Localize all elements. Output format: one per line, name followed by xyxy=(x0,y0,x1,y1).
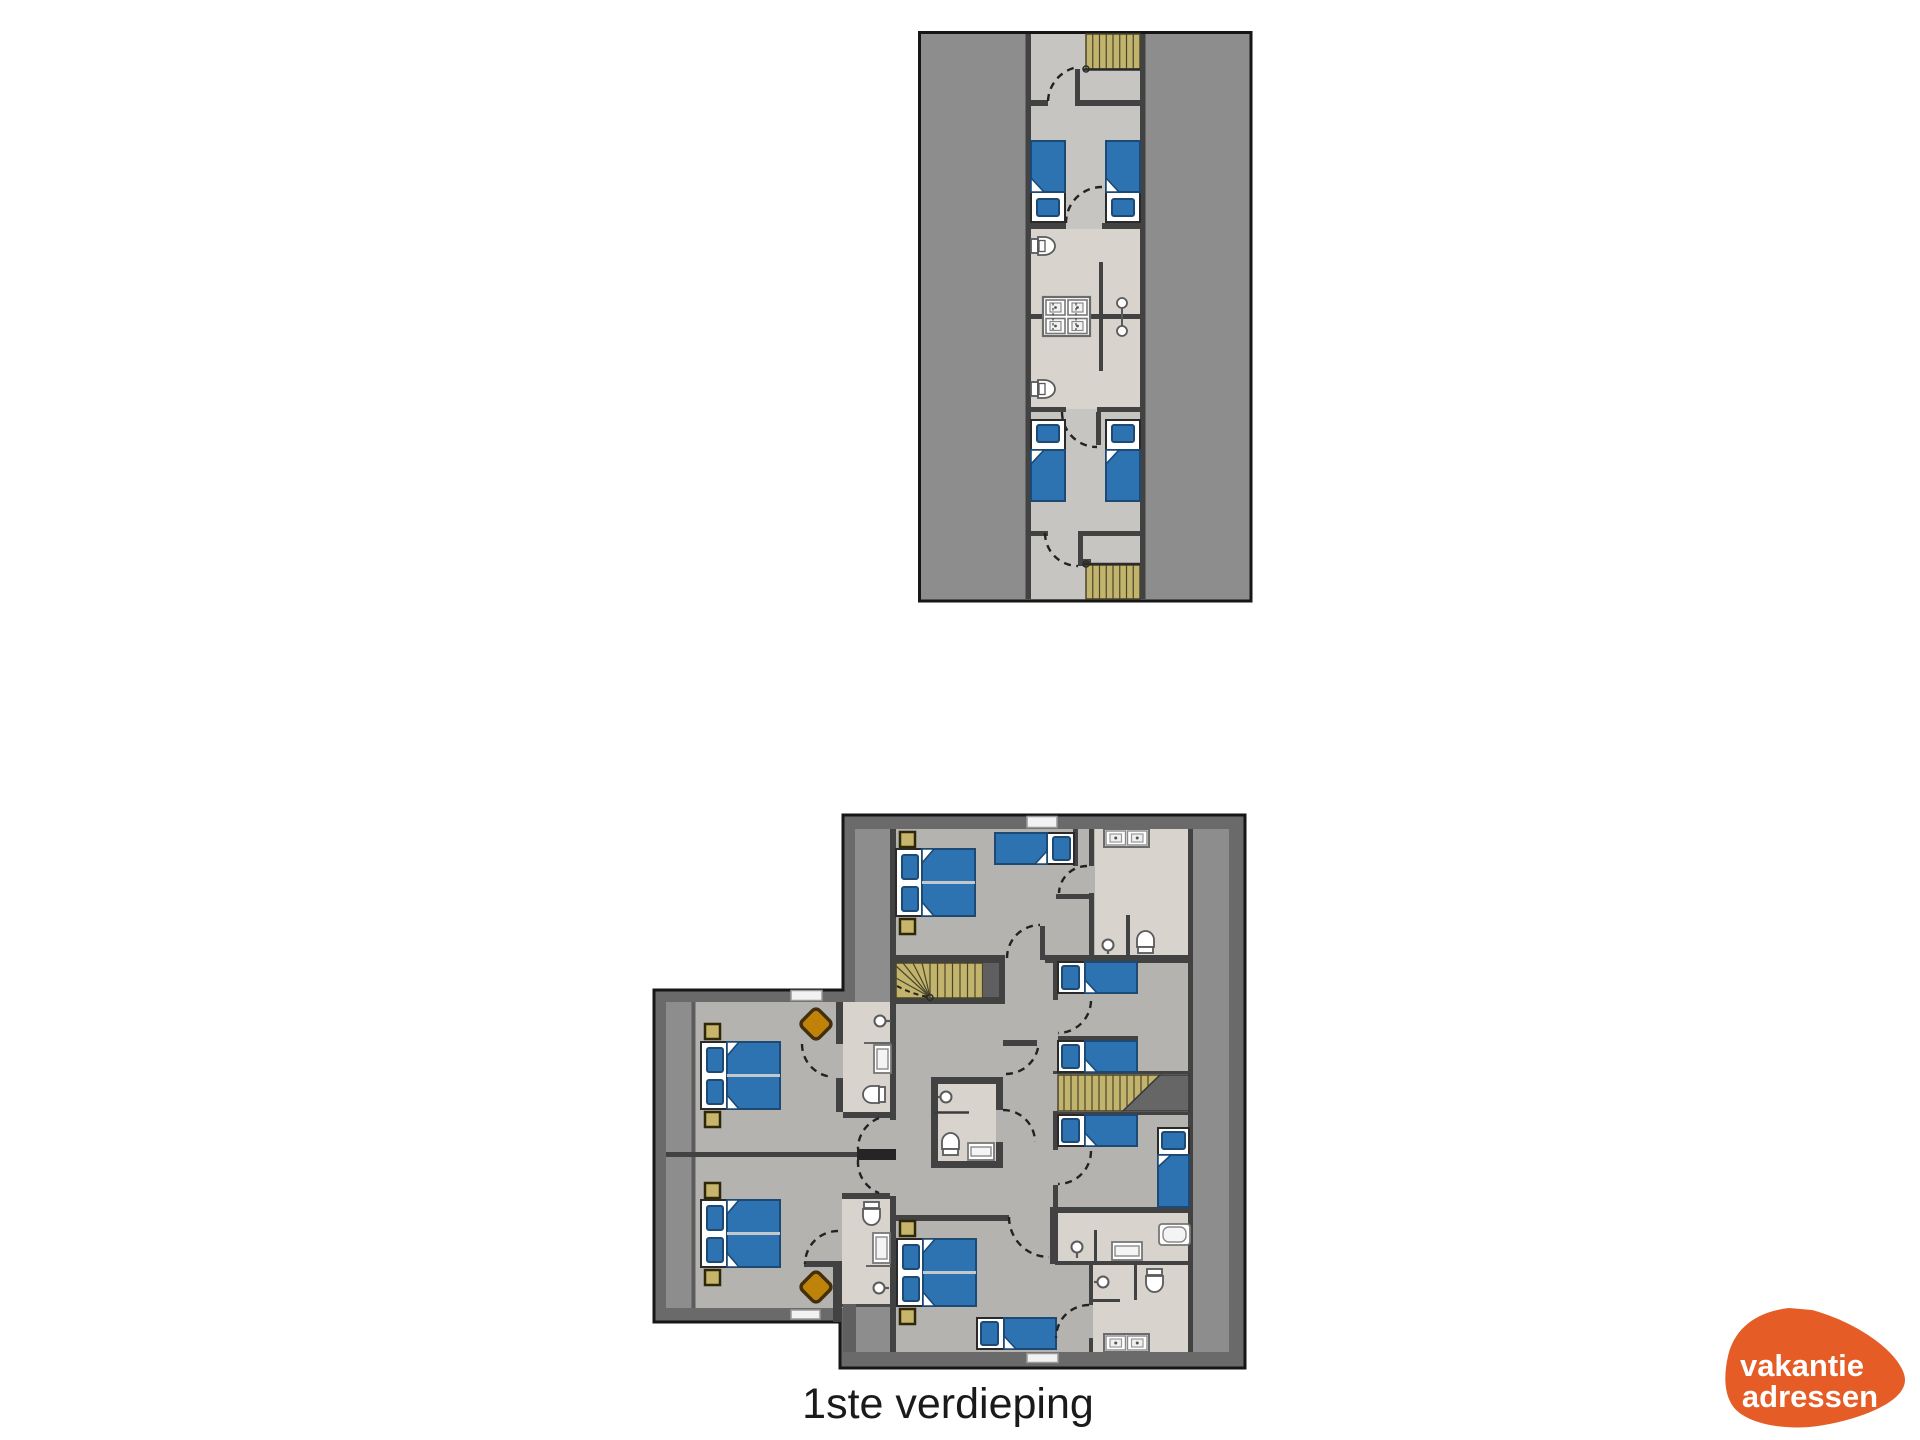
svg-text:adressen: adressen xyxy=(1742,1379,1878,1414)
svg-text:1ste verdieping: 1ste verdieping xyxy=(802,1380,1094,1428)
svg-text:vakantie: vakantie xyxy=(1740,1348,1864,1383)
